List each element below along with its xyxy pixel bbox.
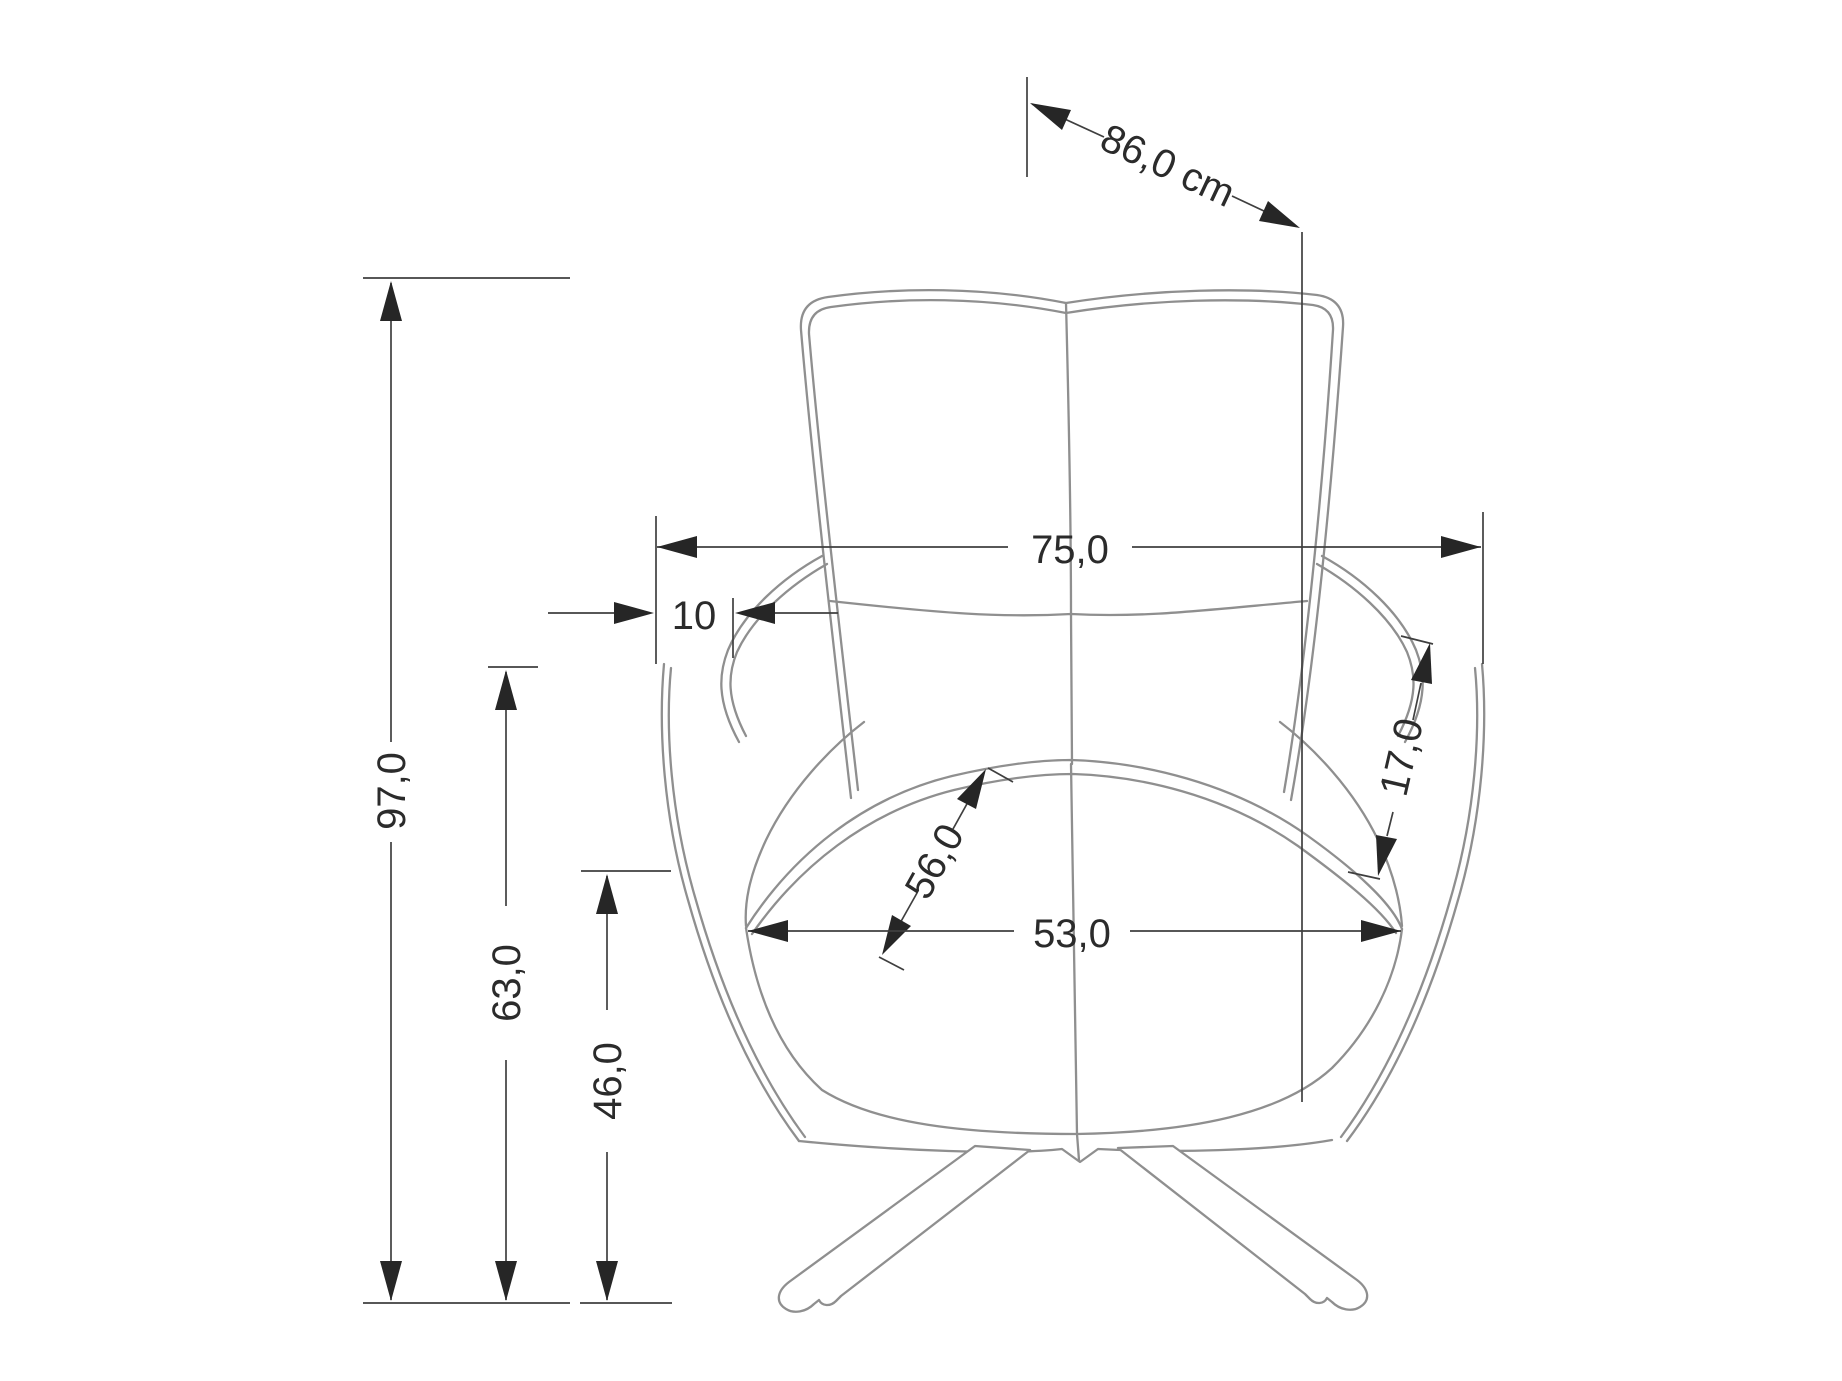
dim-86-arrow-down-right <box>1259 201 1300 228</box>
dim-46-label: 46,0 <box>586 1042 630 1120</box>
right-wing-edge-inner <box>1317 564 1414 736</box>
dim-75-arrow-left <box>657 536 697 558</box>
dim-86-label: 86,0 cm <box>1094 116 1242 216</box>
body-bottom-edge <box>799 1140 1332 1162</box>
dim-97-arrow-bottom <box>380 1261 402 1301</box>
backrest-cross-seam <box>830 601 1307 615</box>
dimension-wing-10: 10 <box>548 594 838 658</box>
dim-17-arrow-top <box>1411 643 1432 684</box>
base-leg-left <box>779 1146 1030 1312</box>
dimension-height-97: 97,0 <box>363 278 570 1303</box>
dimension-height-63: 63,0 <box>485 667 538 1301</box>
dim-53-arrow-left <box>748 920 788 942</box>
dim-10-arrow-right <box>735 602 775 624</box>
dim-53-arrow-right <box>1361 920 1401 942</box>
dim-75-arrow-right <box>1441 536 1481 558</box>
dim-63-arrow-top <box>495 670 517 710</box>
dim-56-label: 56,0 <box>897 817 973 906</box>
left-wing-edge-inner <box>730 564 827 736</box>
dim-86-arrow-up-left <box>1030 103 1071 130</box>
chair-drawing <box>662 290 1484 1312</box>
dim-56-tick-bottom <box>879 957 904 970</box>
base-leg-right <box>1118 1146 1367 1310</box>
armchair-dimension-diagram: 86,0 cm 75,0 10 97,0 63,0 <box>0 0 1842 1381</box>
dim-75-label: 75,0 <box>1031 528 1109 572</box>
dim-53-label: 53,0 <box>1033 912 1111 956</box>
dimension-seat-width-53: 53,0 <box>748 912 1401 956</box>
dim-63-label: 63,0 <box>485 944 529 1022</box>
dim-10-label: 10 <box>672 594 717 638</box>
dim-56-arrow-bottom <box>882 915 911 955</box>
dim-17-tick-bottom <box>1348 872 1380 879</box>
dim-17-label: 17,0 <box>1372 714 1432 800</box>
dimension-wing-panel-17: 17,0 <box>1348 636 1433 879</box>
dim-10-arrow-left <box>614 602 654 624</box>
dimension-drawing-canvas: 86,0 cm 75,0 10 97,0 63,0 <box>0 0 1842 1381</box>
dim-63-arrow-bottom <box>495 1261 517 1301</box>
dim-17-line-a <box>1387 812 1393 836</box>
dim-97-label: 97,0 <box>370 752 414 830</box>
dim-17-arrow-bottom <box>1376 835 1397 876</box>
seat-center-seam <box>1071 764 1079 1160</box>
left-side-edge-outer <box>662 664 799 1141</box>
dim-46-arrow-bottom <box>596 1261 618 1301</box>
dimension-seat-depth-56: 56,0 <box>879 768 1013 970</box>
dim-97-arrow-top <box>380 281 402 321</box>
dimension-height-46: 46,0 <box>580 871 672 1303</box>
dimension-width-75: 75,0 <box>656 512 1483 664</box>
dim-56-line-a <box>899 893 917 925</box>
dim-46-arrow-top <box>596 874 618 914</box>
dim-17-tick-top <box>1401 636 1433 644</box>
dim-56-line-b <box>953 802 968 829</box>
